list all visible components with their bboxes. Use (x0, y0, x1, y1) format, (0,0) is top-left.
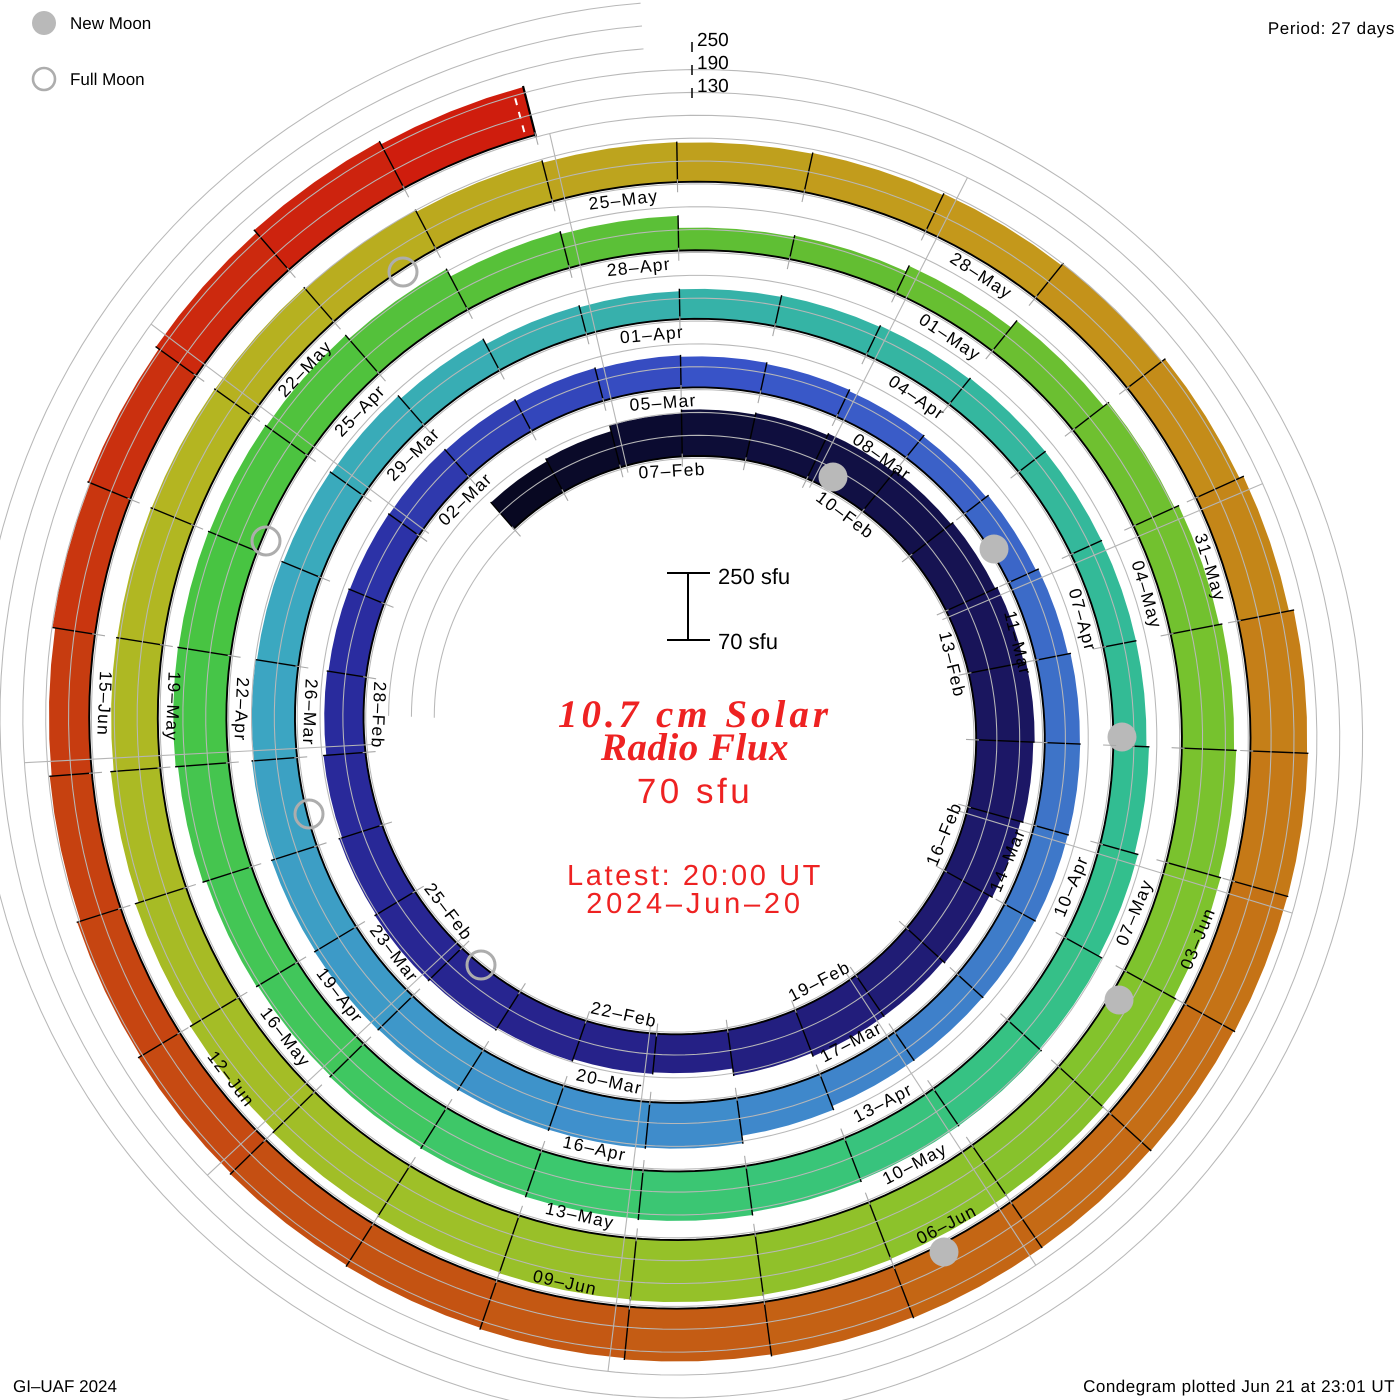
svg-text:New Moon: New Moon (70, 14, 151, 33)
svg-text:Full Moon: Full Moon (70, 70, 145, 89)
svg-text:130: 130 (697, 76, 729, 97)
svg-text:250: 250 (697, 30, 729, 51)
svg-text:07–Feb: 07–Feb (638, 459, 706, 483)
svg-text:190: 190 (697, 53, 729, 74)
